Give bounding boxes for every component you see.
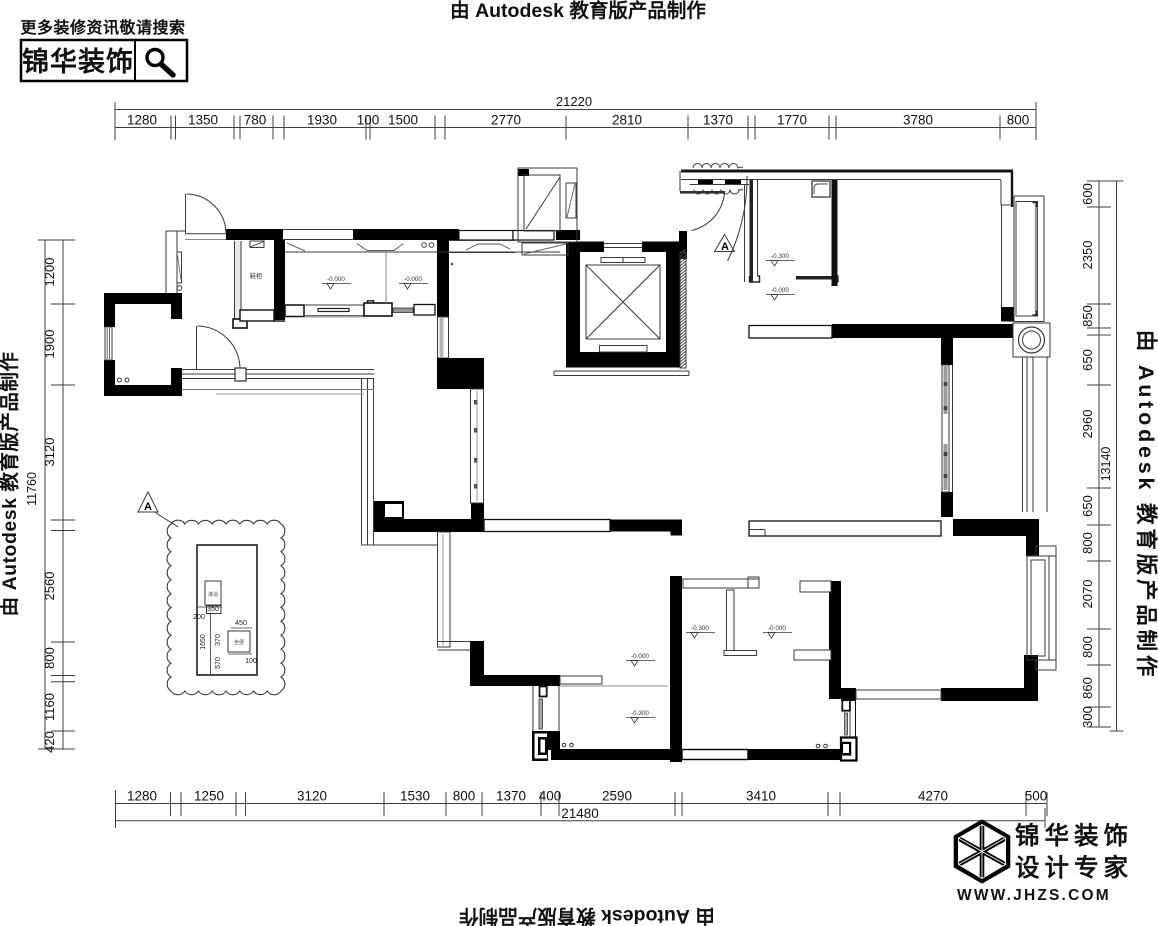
svg-text:-0.000: -0.000	[404, 276, 422, 283]
svg-text:1650: 1650	[200, 634, 207, 650]
svg-text:2070: 2070	[1080, 580, 1095, 609]
svg-text:-0.300: -0.300	[691, 625, 709, 632]
svg-text:锦华装饰: 锦华装饰	[1015, 821, 1133, 850]
svg-text:1930: 1930	[307, 113, 337, 128]
svg-text:-0.000: -0.000	[771, 287, 789, 294]
svg-text:-0.300: -0.300	[771, 253, 789, 260]
svg-text:650: 650	[1080, 495, 1095, 517]
svg-text:-0.000: -0.000	[327, 276, 345, 283]
svg-text:锦华装饰: 锦华装饰	[22, 46, 134, 77]
svg-text:860: 860	[1080, 677, 1095, 699]
svg-text:3410: 3410	[746, 789, 776, 804]
svg-text:800: 800	[1007, 113, 1030, 128]
svg-text:500: 500	[1025, 789, 1048, 804]
svg-text:淋浴: 淋浴	[208, 591, 218, 598]
svg-text:570: 570	[215, 657, 222, 669]
svg-text:-0.000: -0.000	[768, 625, 786, 632]
svg-text:4270: 4270	[918, 789, 948, 804]
svg-text:1200: 1200	[42, 258, 57, 287]
svg-text:A: A	[144, 501, 152, 513]
svg-text:21480: 21480	[561, 806, 599, 821]
svg-text:370: 370	[215, 634, 222, 646]
svg-text:800: 800	[1080, 636, 1095, 658]
svg-text:3780: 3780	[903, 113, 933, 128]
svg-text:1250: 1250	[194, 789, 224, 804]
svg-text:850: 850	[1080, 305, 1095, 327]
svg-text:2560: 2560	[42, 572, 57, 601]
svg-text:-0.000: -0.000	[631, 653, 649, 660]
svg-text:1770: 1770	[777, 113, 807, 128]
svg-text:800: 800	[1080, 532, 1095, 554]
svg-text:由 Autodesk 教育版产品制作: 由 Autodesk 教育版产品制作	[0, 352, 21, 617]
svg-text:1500: 1500	[388, 113, 418, 128]
svg-text:13140: 13140	[1099, 447, 1113, 482]
svg-text:800: 800	[42, 647, 57, 669]
svg-text:鞋柜: 鞋柜	[250, 271, 264, 280]
svg-text:2960: 2960	[1080, 410, 1095, 439]
svg-text:-0.300: -0.300	[631, 710, 649, 717]
svg-text:WWW.JHZS.COM: WWW.JHZS.COM	[957, 887, 1111, 904]
svg-text:450: 450	[235, 620, 247, 627]
svg-text:200: 200	[193, 614, 205, 621]
svg-text:坐便: 坐便	[234, 639, 244, 646]
svg-text:11760: 11760	[25, 472, 39, 506]
svg-text:由 Autodesk 教育版产品制作: 由 Autodesk 教育版产品制作	[1134, 330, 1158, 680]
svg-text:2590: 2590	[602, 789, 632, 804]
svg-text:1350: 1350	[188, 113, 218, 128]
svg-text:由 Autodesk 教育版产品制作: 由 Autodesk 教育版产品制作	[450, 0, 706, 22]
svg-text:1160: 1160	[42, 693, 57, 721]
svg-text:1900: 1900	[42, 330, 57, 359]
svg-text:1280: 1280	[127, 789, 157, 804]
svg-text:800: 800	[453, 789, 476, 804]
svg-text:600: 600	[1080, 183, 1095, 205]
svg-text:由 Autodesk 教育版产品制作: 由 Autodesk 教育版产品制作	[459, 905, 715, 926]
svg-text:2770: 2770	[491, 113, 521, 128]
svg-text:更多装修资讯敬请搜索: 更多装修资讯敬请搜索	[20, 18, 185, 37]
svg-text:3120: 3120	[42, 438, 57, 467]
svg-text:650: 650	[1080, 349, 1095, 371]
svg-text:1530: 1530	[400, 789, 430, 804]
svg-text:100: 100	[245, 658, 257, 665]
svg-text:21220: 21220	[556, 94, 592, 109]
svg-text:3120: 3120	[297, 789, 327, 804]
svg-text:2810: 2810	[612, 113, 642, 128]
svg-text:780: 780	[244, 113, 267, 128]
svg-text:1370: 1370	[703, 113, 733, 128]
svg-text:100: 100	[357, 113, 380, 128]
svg-text:400: 400	[539, 789, 562, 804]
svg-text:设计专家: 设计专家	[1015, 853, 1133, 882]
svg-text:A: A	[721, 241, 729, 253]
svg-text:1370: 1370	[496, 789, 526, 804]
svg-text:1280: 1280	[127, 113, 157, 128]
svg-text:420: 420	[42, 731, 57, 753]
svg-text:2350: 2350	[1080, 241, 1095, 270]
svg-text:300: 300	[1080, 706, 1095, 728]
